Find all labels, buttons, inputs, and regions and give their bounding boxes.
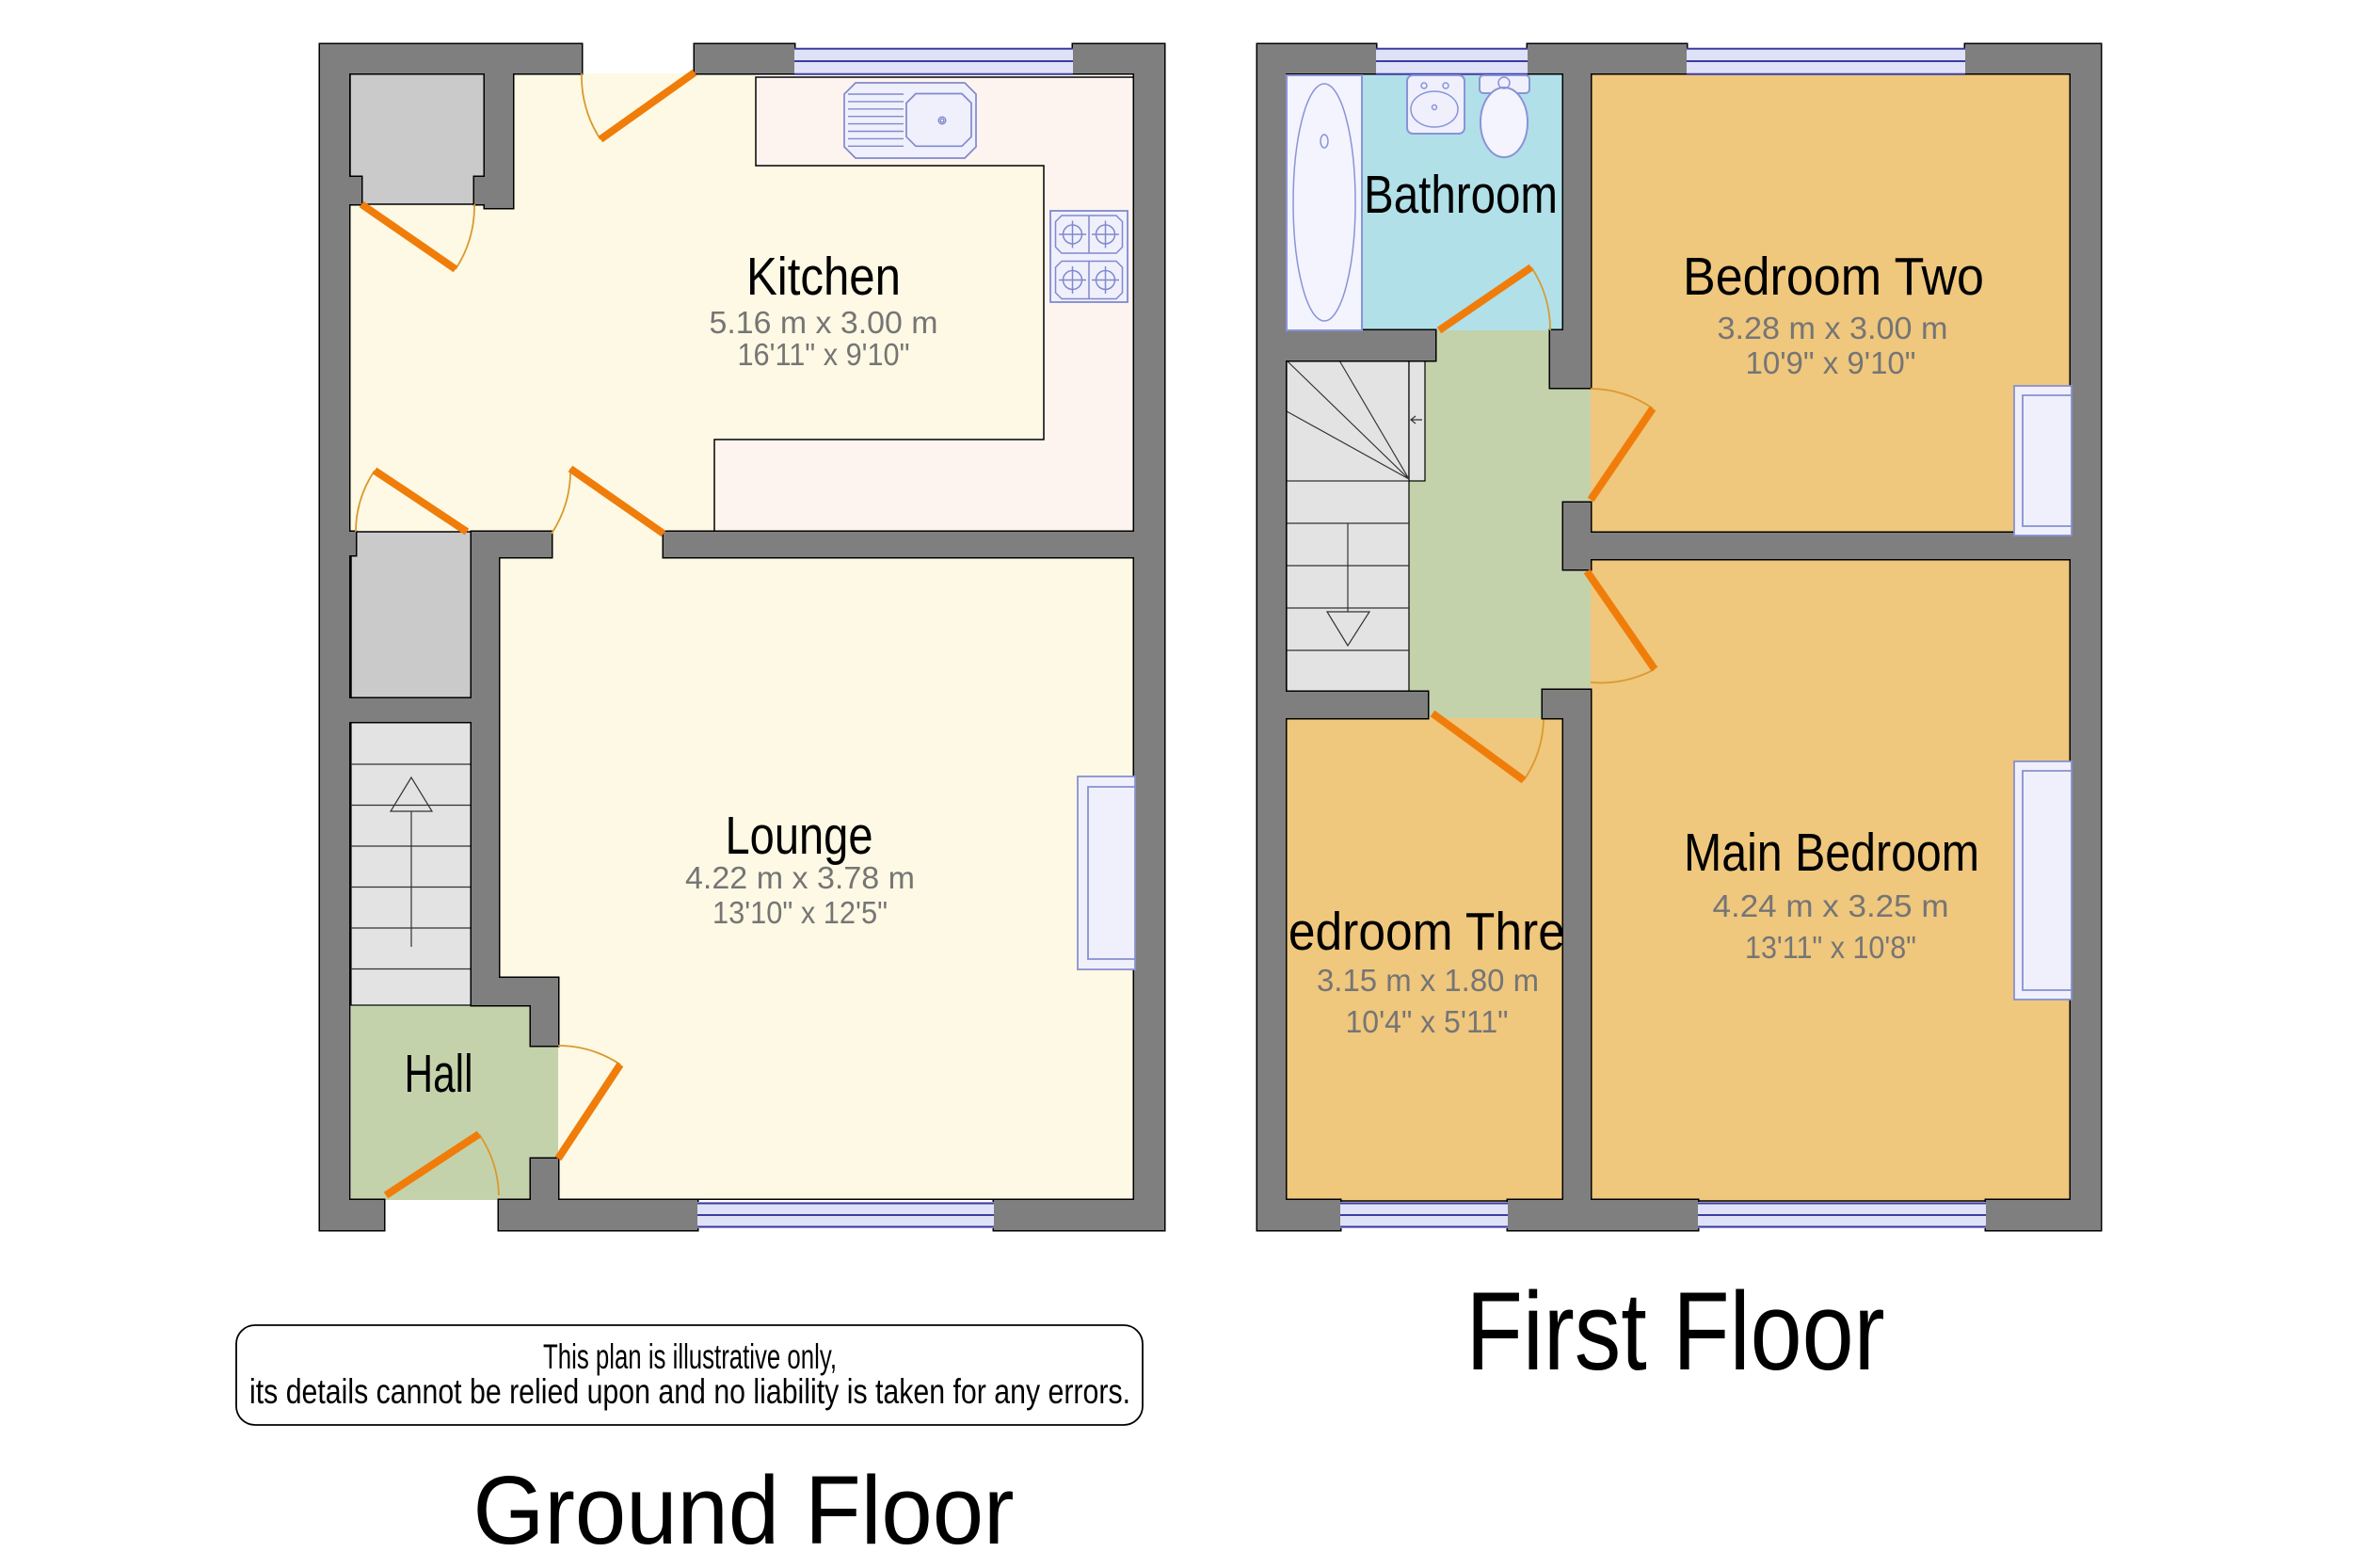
svg-text:This plan is illustrative only: This plan is illustrative only, xyxy=(543,1337,837,1376)
svg-text:5.16 m x 3.00 m: 5.16 m x 3.00 m xyxy=(710,305,938,340)
svg-text:3.28 m x 3.00 m: 3.28 m x 3.00 m xyxy=(1718,311,1948,345)
svg-text:13'10" x 12'5": 13'10" x 12'5" xyxy=(712,895,888,930)
svg-text:10'9" x 9'10": 10'9" x 9'10" xyxy=(1746,345,1916,380)
svg-text:Hall: Hall xyxy=(405,1044,473,1104)
svg-text:Bedroom Three: Bedroom Three xyxy=(1257,902,1593,962)
svg-text:Kitchen: Kitchen xyxy=(746,247,901,307)
svg-text:Lounge: Lounge xyxy=(726,806,873,866)
svg-text:its details cannot be relied u: its details cannot be relied upon and no… xyxy=(249,1372,1130,1411)
svg-text:First Floor: First Floor xyxy=(1466,1270,1885,1394)
svg-text:4.24 m x 3.25 m: 4.24 m x 3.25 m xyxy=(1713,888,1949,923)
svg-text:16'11" x 9'10": 16'11" x 9'10" xyxy=(738,337,910,372)
svg-text:10'4" x 5'11": 10'4" x 5'11" xyxy=(1346,1004,1509,1039)
svg-text:3.15 m x 1.80 m: 3.15 m x 1.80 m xyxy=(1317,963,1539,998)
svg-text:Ground Floor: Ground Floor xyxy=(473,1456,1015,1564)
svg-text:4.22 m x 3.78 m: 4.22 m x 3.78 m xyxy=(685,860,915,895)
svg-text:Main Bedroom: Main Bedroom xyxy=(1684,823,1979,883)
svg-text:Bathroom: Bathroom xyxy=(1364,165,1558,225)
svg-text:13'11" x 10'8": 13'11" x 10'8" xyxy=(1745,930,1916,965)
svg-text:Bedroom Two: Bedroom Two xyxy=(1683,247,1984,307)
